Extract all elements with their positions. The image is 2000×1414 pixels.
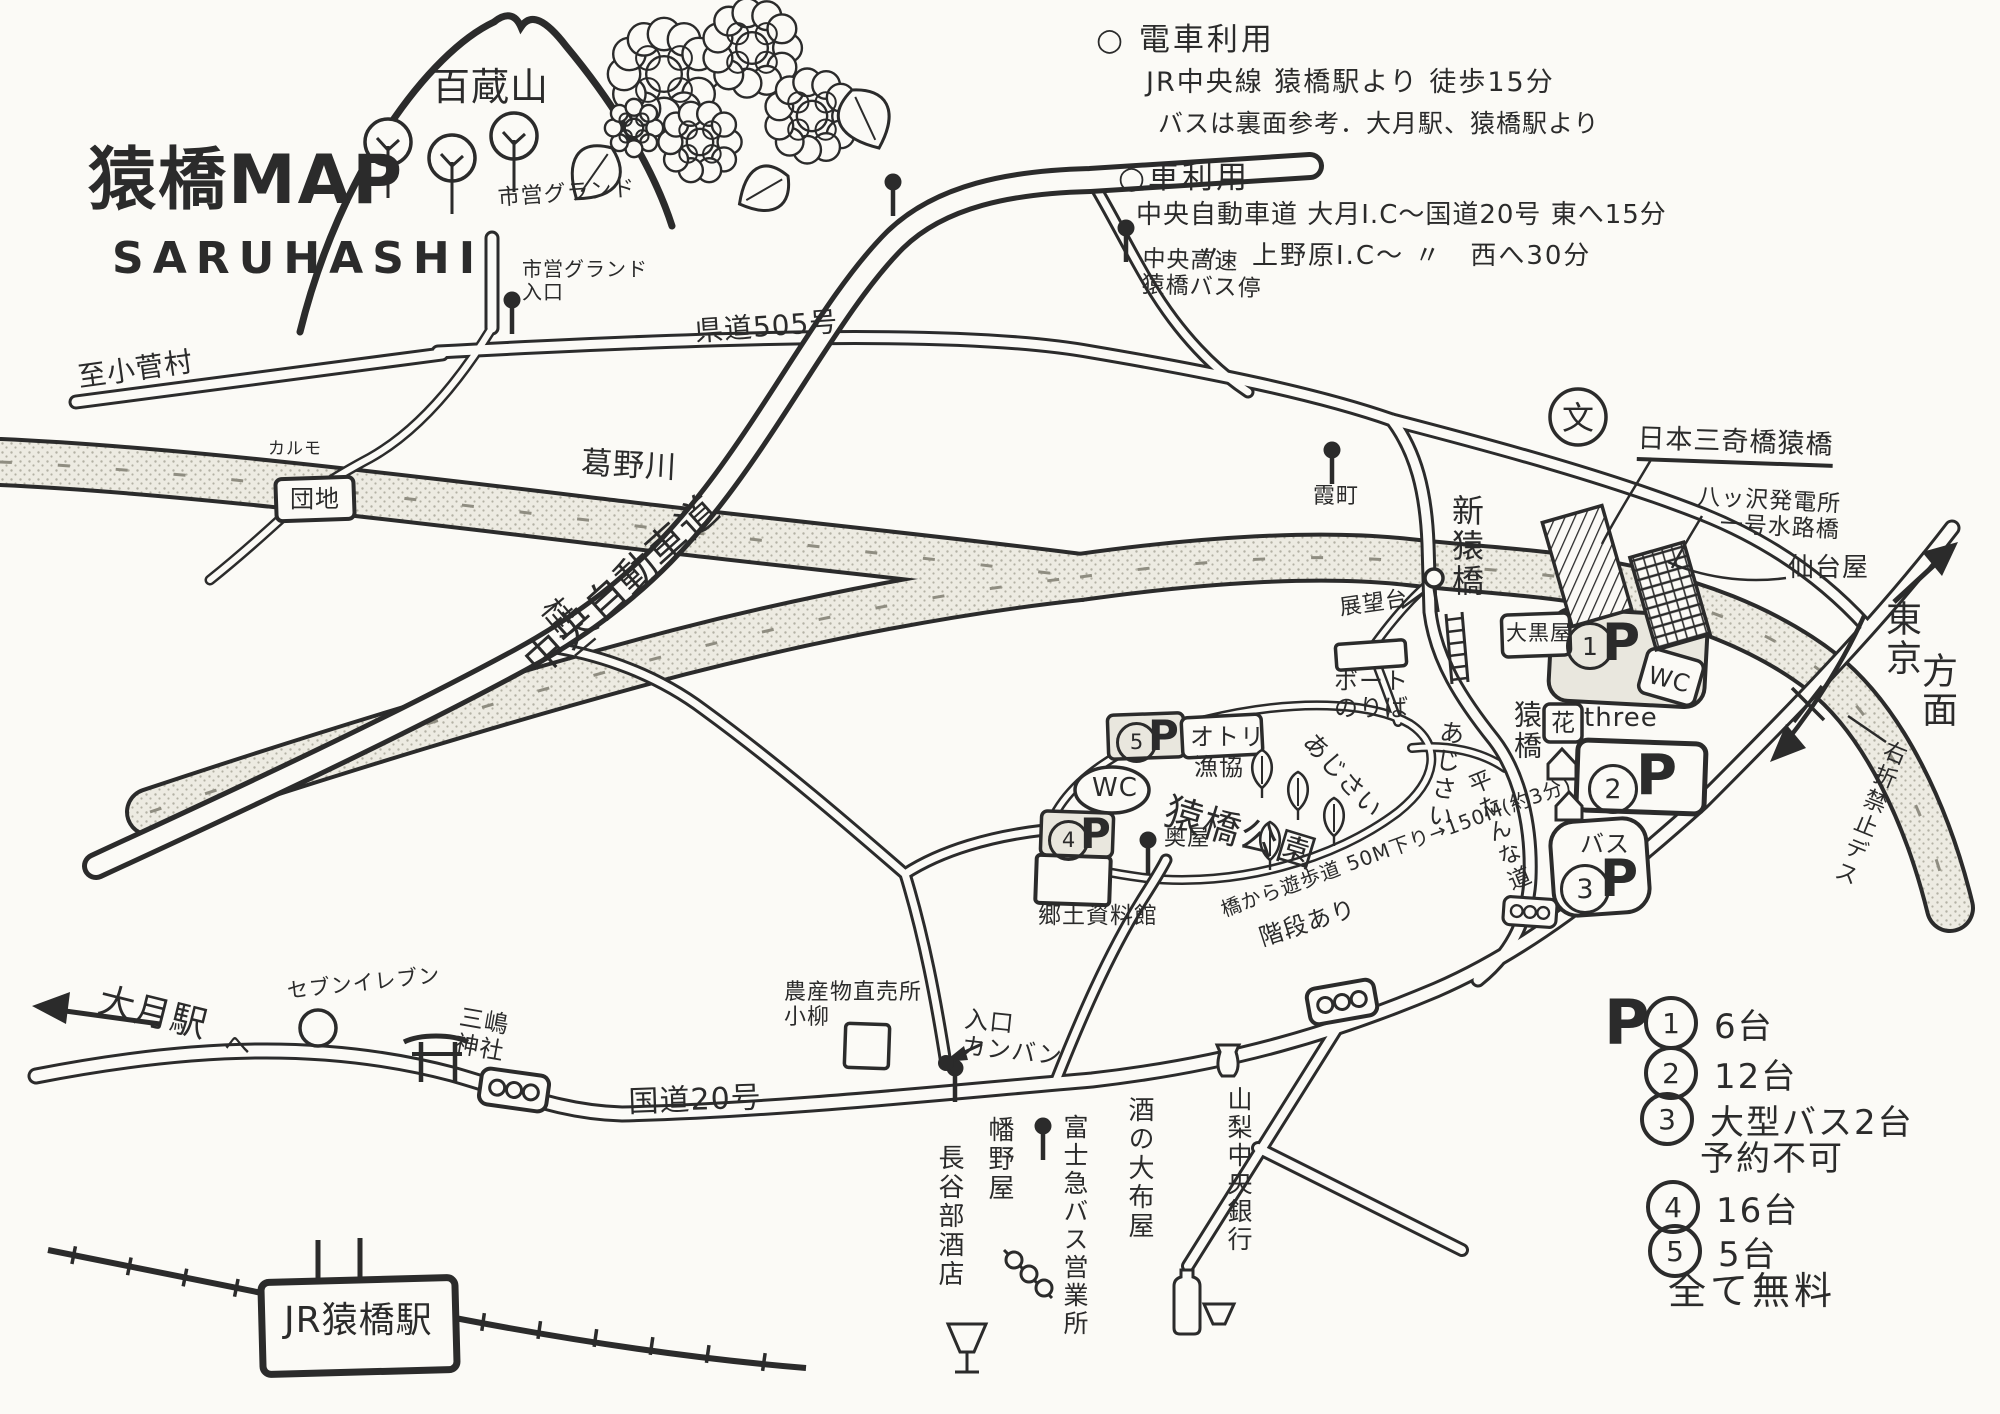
p5-p-label: P bbox=[1148, 712, 1180, 760]
danchi-label: 団地 bbox=[290, 486, 340, 513]
farm-stand-label: 農産物直売所 小柳 bbox=[784, 980, 922, 1030]
tree-icon bbox=[429, 135, 475, 214]
hydrangea-flower-icon bbox=[658, 102, 741, 182]
sake-cup-icon bbox=[948, 1324, 986, 1372]
map-title: 猿橋MAP bbox=[88, 142, 404, 220]
gyokyo-label: 漁協 bbox=[1194, 754, 1244, 781]
kasumi-cho-label: 霞町 bbox=[1313, 484, 1359, 509]
wc-park-label: WC bbox=[1092, 774, 1138, 804]
map-subtitle: SARUHASHI bbox=[112, 234, 484, 284]
traffic-signal-icon bbox=[478, 1067, 550, 1112]
park-tree-icon bbox=[1288, 772, 1308, 820]
p4-p-label: P bbox=[1080, 810, 1112, 858]
tree-icon bbox=[491, 113, 537, 192]
nihon-sankyo-saruhashi-label: 日本三奇橋猿橋 bbox=[1637, 424, 1834, 468]
bus-stop-icon bbox=[1035, 1118, 1052, 1161]
map-icons bbox=[404, 174, 1557, 1373]
hatano-ya-label: 幡野屋 bbox=[986, 1116, 1012, 1203]
seven-eleven-icon bbox=[300, 1010, 336, 1046]
yatsuzawa-power-label: 八ッ沢発電所 一号水路橋 bbox=[1695, 484, 1842, 544]
shin-saruhashi-label: 新猿橋 bbox=[1450, 494, 1482, 599]
sendai-ya-label: 仙台屋 bbox=[1788, 554, 1869, 584]
hasebe-saketen-label: 長谷部酒店 bbox=[936, 1144, 962, 1289]
mt-momokura-label: 百蔵山 bbox=[432, 66, 549, 109]
bank-icon bbox=[1217, 1045, 1239, 1076]
boat-noriba-label: ボート のりば bbox=[1334, 668, 1409, 723]
legend-item-3: 3 大型バス2台 bbox=[1640, 1092, 1914, 1146]
bus-stop-icon bbox=[504, 292, 521, 335]
daikoku-ya-label: 大黒屋 bbox=[1506, 622, 1572, 646]
legend-note-3: 予約不可 bbox=[1700, 1140, 1844, 1179]
legend-num-1: 1 bbox=[1644, 996, 1698, 1050]
entrance-signboard-label: 入口 カンバン bbox=[960, 1006, 1066, 1071]
three-label: three bbox=[1584, 704, 1658, 734]
museum-building bbox=[1035, 855, 1111, 906]
mishima-shrine-label: 三嶋 神社 bbox=[452, 1004, 511, 1067]
note-car-title: ○車利用 bbox=[1118, 152, 1250, 197]
legend-text-3: 大型バス2台 bbox=[1710, 1095, 1914, 1144]
route-20-label: 国道20号 bbox=[628, 1081, 762, 1120]
note-train-line2: バスは裏面参考．大月駅、猿橋駅より bbox=[1158, 104, 1600, 140]
sankyo-pointer bbox=[1602, 458, 1652, 544]
note-train-title: ○ 電車利用 bbox=[1096, 14, 1275, 59]
bus-stop-icon bbox=[1324, 442, 1341, 485]
p2-num-label: 2 bbox=[1588, 764, 1638, 814]
kyodo-museum-label: 郷土資料館 bbox=[1038, 903, 1158, 929]
bus-stop-icon bbox=[885, 174, 902, 217]
jr-saruhashi-station-label: JR猿橋駅 bbox=[284, 1300, 433, 1341]
legend-item-1: 1 6台 bbox=[1644, 996, 1774, 1050]
note-train-line1: JR中央線 猿橋駅より 徒歩15分 bbox=[1146, 60, 1555, 99]
otori-label: オトリ bbox=[1190, 724, 1265, 751]
bus-stop-icon bbox=[1140, 832, 1157, 875]
leaf-icon bbox=[728, 157, 799, 223]
p1-p-label: P bbox=[1602, 614, 1641, 673]
note-car-line1: 中央自動車道 大月I.C〜国道20号 東へ15分 bbox=[1136, 194, 1667, 231]
homen-label: 方面 bbox=[1918, 652, 1954, 730]
chuo-kosoku-bus-stop-label: 中央高速 猿橋バス停 bbox=[1141, 246, 1263, 303]
saruhashi-bridge-icon bbox=[1542, 506, 1631, 627]
school-mark-label: 文 bbox=[1562, 400, 1595, 436]
boat-dock bbox=[1335, 640, 1407, 671]
traffic-signal-icon bbox=[1503, 896, 1558, 928]
hana-label: 花 bbox=[1551, 710, 1576, 737]
legend-footer: 全て無料 bbox=[1668, 1270, 1836, 1313]
legend-text-1: 6台 bbox=[1714, 999, 1774, 1048]
yamanashi-chuo-bank-label: 山梨中央銀行 bbox=[1226, 1086, 1251, 1254]
park-tree-icon bbox=[1252, 750, 1272, 798]
saruhashi-hand-drawn-map: 猿橋MAP SARUHASHI ○ 電車利用 JR中央線 猿橋駅より 徒歩15分… bbox=[0, 0, 2000, 1414]
sake-no-ofuya-label: 酒の大布屋 bbox=[1126, 1096, 1152, 1241]
dango-icon bbox=[1004, 1250, 1052, 1298]
legend-text-2: 12台 bbox=[1714, 1049, 1797, 1098]
park-tree-icon bbox=[1324, 798, 1344, 846]
buildings-and-bridges bbox=[261, 389, 1710, 1375]
oku-ya-label: 奥屋 bbox=[1164, 826, 1210, 851]
shiei-ground-entrance-label: 市営グランド 入口 bbox=[522, 258, 648, 304]
p2-p-label: P bbox=[1636, 744, 1678, 808]
p3-p-label: P bbox=[1600, 850, 1639, 909]
katsuno-river-label: 葛野川 bbox=[580, 446, 678, 486]
legend-num-3: 3 bbox=[1640, 1092, 1694, 1146]
tokyo-label: 東京 bbox=[1882, 600, 1918, 678]
karumo-label: カルモ bbox=[268, 440, 322, 459]
sake-bottle-icon bbox=[1174, 1270, 1234, 1334]
fujikyu-bus-office-label: 富士急バス営業所 bbox=[1062, 1114, 1087, 1338]
to-otsuki-he-label: へ bbox=[224, 1032, 251, 1062]
saruhashi-bridge-label: 猿橋 bbox=[1512, 700, 1540, 762]
